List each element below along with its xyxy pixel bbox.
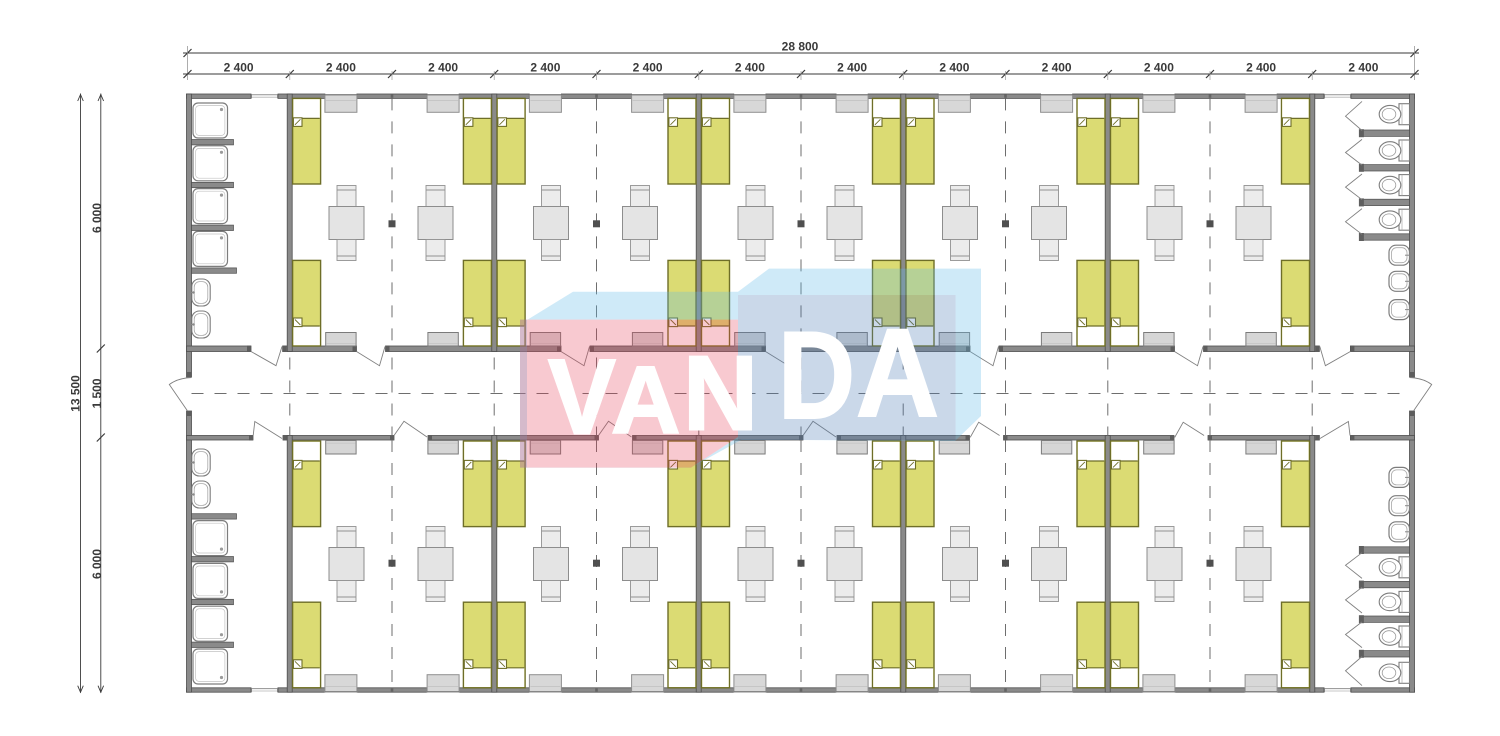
svg-text:2 400: 2 400: [224, 61, 254, 75]
svg-text:A: A: [856, 304, 939, 443]
svg-text:2 400: 2 400: [1042, 61, 1072, 75]
svg-text:2 400: 2 400: [326, 61, 356, 75]
svg-text:1 500: 1 500: [90, 378, 104, 408]
svg-text:2 400: 2 400: [837, 61, 867, 75]
svg-text:V: V: [548, 338, 616, 457]
svg-text:2 400: 2 400: [735, 61, 765, 75]
svg-text:D: D: [778, 305, 855, 444]
svg-text:13 500: 13 500: [69, 375, 83, 412]
svg-text:28 800: 28 800: [782, 40, 819, 54]
svg-text:2 400: 2 400: [530, 61, 560, 75]
svg-text:6 000: 6 000: [90, 203, 104, 233]
svg-text:6 000: 6 000: [90, 549, 104, 579]
svg-text:2 400: 2 400: [1348, 61, 1378, 75]
svg-text:2 400: 2 400: [1144, 61, 1174, 75]
svg-text:N: N: [683, 335, 758, 453]
svg-text:A: A: [611, 347, 680, 454]
svg-text:2 400: 2 400: [1246, 61, 1276, 75]
svg-text:2 400: 2 400: [428, 61, 458, 75]
svg-text:2 400: 2 400: [633, 61, 663, 75]
svg-text:2 400: 2 400: [939, 61, 969, 75]
